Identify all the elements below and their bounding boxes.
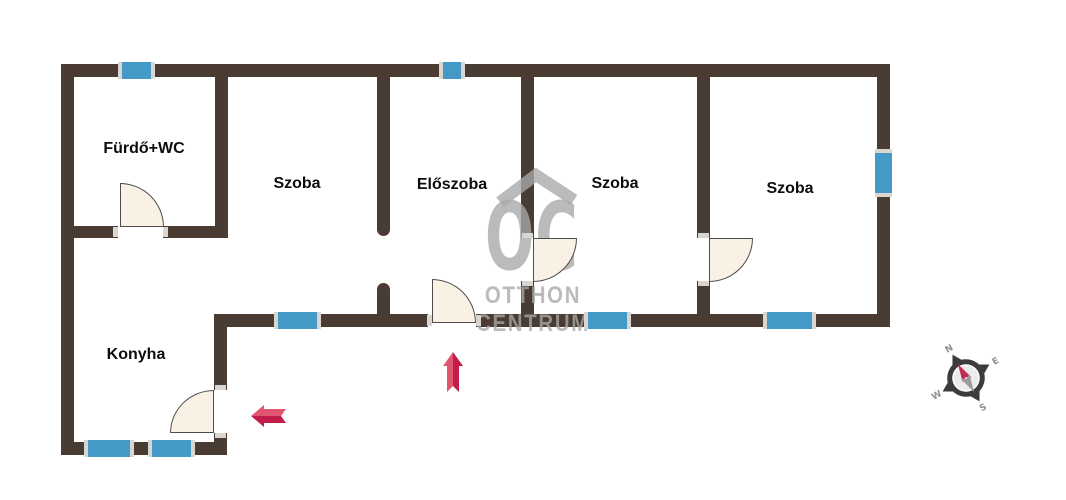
wall-konyha-right-upper	[214, 314, 227, 390]
door-jamb	[215, 385, 226, 390]
compass-face	[944, 356, 988, 400]
room-label-furdo-wc: Fürdő+WC	[103, 140, 184, 158]
wall-furdo-bottom-left	[61, 226, 118, 238]
door-jamb	[215, 433, 226, 438]
door-jamb	[698, 281, 709, 286]
door-furdo	[120, 183, 164, 227]
wall-szoba1-eloszoba	[377, 77, 390, 236]
window-passage-bottom	[274, 312, 321, 329]
door-entrance	[432, 279, 476, 323]
window-eloszoba-top	[439, 62, 465, 79]
wall-bottom-main-left	[214, 314, 428, 327]
window-szoba2-bottom	[584, 312, 631, 329]
compass-label-w: W	[930, 389, 944, 403]
door-jamb	[476, 315, 481, 326]
wall-szoba2-szoba3-upper	[697, 77, 710, 238]
wall-szoba1-eloszoba-stub	[377, 283, 390, 314]
compass-label-e: E	[991, 356, 1001, 368]
room-label-eloszoba: Előszoba	[417, 176, 487, 194]
door-jamb	[698, 233, 709, 238]
floor-plan-canvas: OC OTTHON CENTRUM Fürdő+WC Szoba Előszob…	[0, 0, 1066, 500]
window-szoba3-right	[875, 149, 892, 197]
watermark-line2: CENTRUM	[476, 310, 590, 338]
room-label-konyha: Konyha	[107, 346, 166, 364]
room-label-szoba-2: Szoba	[591, 175, 638, 193]
entrance-arrow-up	[441, 350, 467, 396]
window-furdo-top	[118, 62, 155, 79]
compass-rose: N E S W	[926, 338, 1006, 418]
compass-label-n: N	[944, 343, 956, 355]
room-label-szoba-1: Szoba	[273, 175, 320, 193]
window-konyha-bottom-1	[84, 440, 134, 457]
room-label-szoba-3: Szoba	[766, 180, 813, 198]
wall-outer-top	[61, 64, 890, 77]
wall-furdo-right	[215, 64, 228, 238]
door-jamb	[163, 227, 168, 237]
entrance-arrow-left	[250, 404, 288, 429]
door-jamb	[522, 281, 533, 286]
window-szoba3-bottom	[763, 312, 816, 329]
door-szoba3	[709, 238, 753, 282]
door-jamb	[113, 227, 118, 237]
watermark-line1: OTTHON	[485, 282, 581, 310]
window-konyha-bottom-2	[148, 440, 195, 457]
wall-furdo-bottom-right	[163, 226, 228, 238]
door-jamb	[522, 233, 533, 238]
compass-label-s: S	[978, 402, 989, 414]
door-konyha	[170, 390, 214, 433]
wall-outer-left	[61, 64, 74, 455]
